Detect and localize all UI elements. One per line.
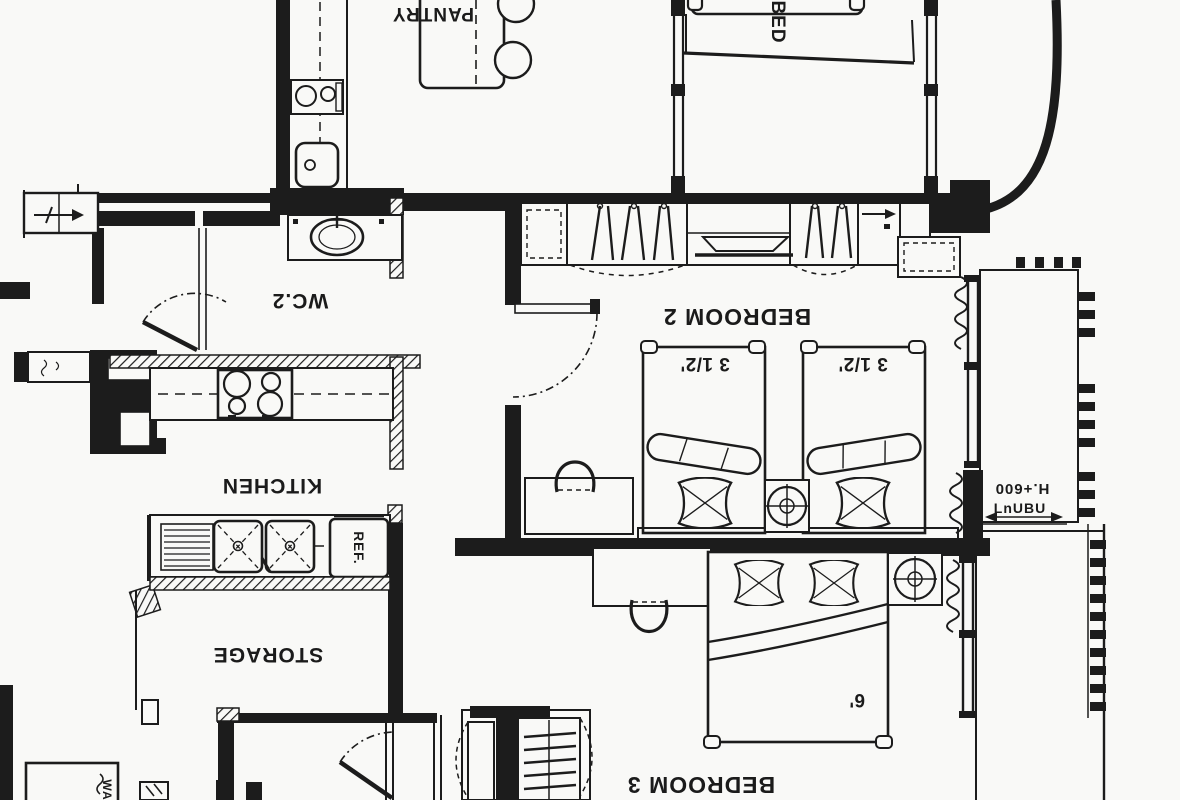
room-label-storage: STORAGE: [213, 643, 323, 666]
room-label-bedroom2: BEDROOM 2: [663, 304, 811, 330]
room-label-kitchen: KITCHEN: [222, 474, 322, 497]
kitchen-stove: [218, 370, 292, 419]
washer-label: WA: [100, 779, 114, 800]
pantry-chair: [495, 42, 531, 78]
room-label-wc2: WC.2: [272, 289, 329, 312]
bedroom3-wardrobe: [456, 706, 592, 800]
bed-size-label-b: 3 1/2': [838, 353, 888, 374]
pantry-sink: [296, 143, 338, 187]
pantry-stove: [291, 80, 343, 114]
floor-plan: PANTRY BED WC.2 BEDROOM 2 KITCHEN STORAG…: [0, 0, 1180, 800]
shaft-box: [24, 184, 98, 238]
double-bed: [704, 552, 892, 748]
nightstand-b: [888, 553, 942, 605]
room-label-bedroom3: BEDROOM 3: [627, 772, 775, 798]
room-label-bedroom1: BED: [767, 0, 788, 43]
bed-size-label-a: 3 1/2': [680, 353, 730, 374]
room-label-pantry: PANTRY: [392, 3, 474, 24]
ledge-note-label: LnUBU: [994, 500, 1046, 516]
refrigerator-label: REF.: [351, 531, 366, 564]
ledge-height-label: H.+600: [995, 480, 1050, 497]
floor-plan-page: PANTRY BED WC.2 BEDROOM 2 KITCHEN STORAG…: [0, 0, 1180, 800]
bedroom2-wardrobe: [521, 203, 960, 277]
nightstand-a: [765, 480, 809, 532]
bed-size-label-c: 6': [849, 689, 865, 710]
